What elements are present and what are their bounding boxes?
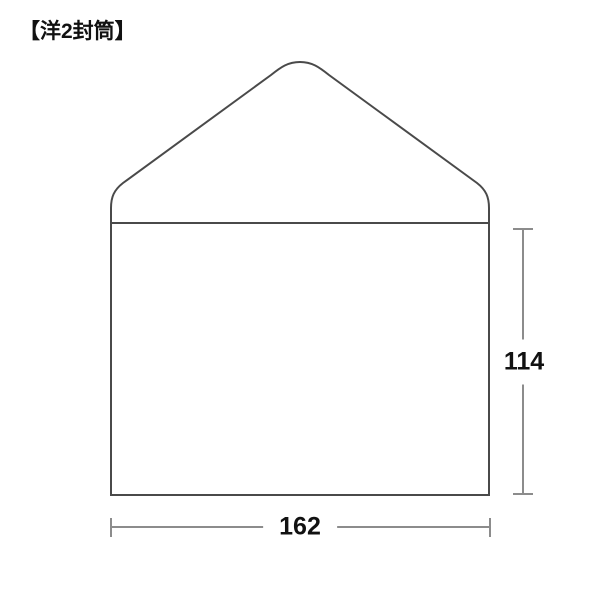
height-dimension-label: 114 bbox=[501, 340, 547, 385]
envelope-body-outline bbox=[111, 223, 489, 495]
width-dimension-label: 162 bbox=[263, 512, 337, 543]
envelope-size-diagram: 【洋2封筒】 114 162 bbox=[0, 0, 600, 600]
envelope-flap-outline bbox=[111, 62, 489, 223]
envelope-diagram-canvas bbox=[0, 0, 600, 600]
